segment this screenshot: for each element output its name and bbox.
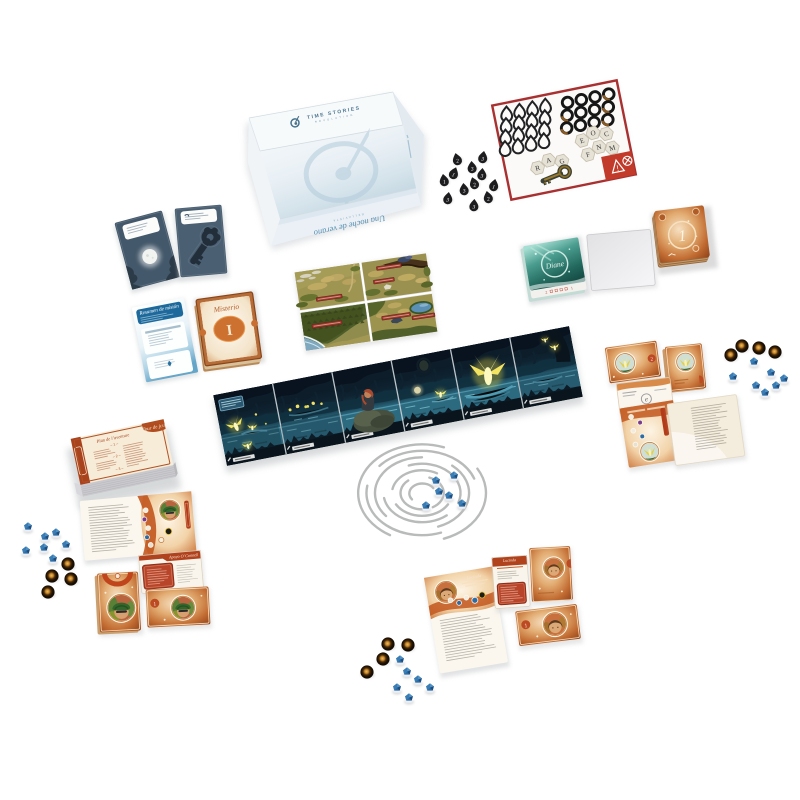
svg-text:Lucinda: Lucinda xyxy=(502,557,516,563)
svg-text:3: 3 xyxy=(471,204,475,210)
